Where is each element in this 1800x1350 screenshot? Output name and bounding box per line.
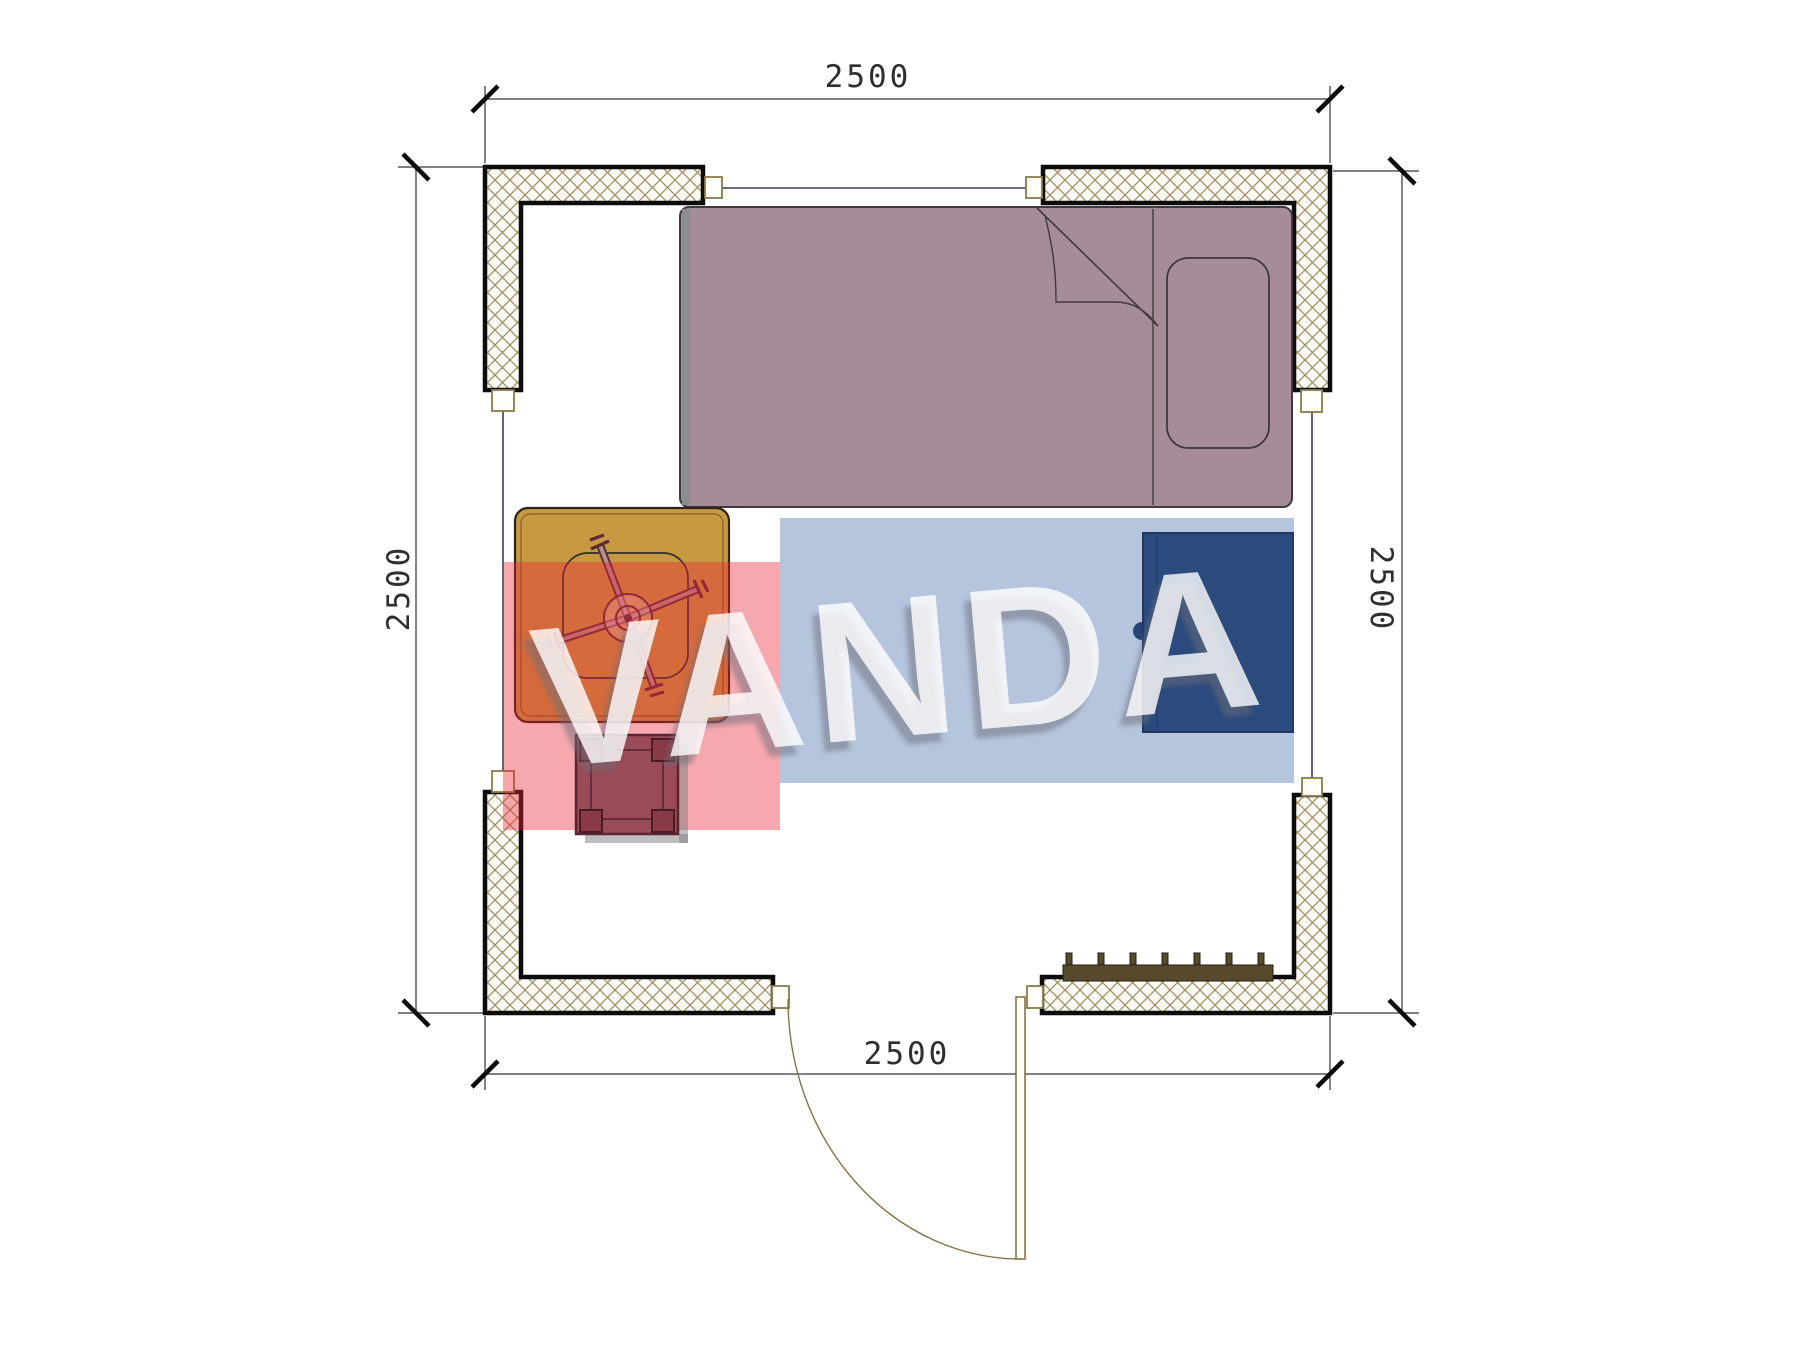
bed-pillow [1167, 258, 1269, 448]
radiator [1063, 953, 1273, 981]
bed [680, 207, 1292, 507]
wall-top-left [485, 167, 703, 390]
floor-plan-drawing [0, 0, 1800, 1350]
stool-shadow [585, 834, 688, 843]
stool [576, 735, 688, 843]
door-jamb-cap [1027, 986, 1043, 1008]
stool-leg [652, 739, 674, 761]
window-frame-box [705, 177, 722, 198]
door [772, 986, 1043, 1259]
watermark-blue-block [780, 518, 1294, 783]
floor-plan-canvas: 2500 2500 2500 2500 VANDA [0, 0, 1800, 1350]
stool-shadow [679, 744, 688, 843]
dimension-label-bottom: 2500 [839, 1036, 975, 1072]
window-frame-box [492, 390, 514, 411]
bed-edge-shade [682, 209, 690, 505]
dimension-label-left: 2500 [381, 520, 417, 656]
window-frame-box [1301, 390, 1322, 412]
door-jamb-cap [772, 986, 789, 1008]
window-frame-box [1302, 778, 1322, 796]
door-leaf [1016, 997, 1025, 1259]
stool-leg [652, 810, 674, 832]
window-frame-box [1026, 177, 1042, 198]
dimension-label-top: 2500 [800, 59, 936, 95]
stool-leg [580, 739, 602, 761]
stool-leg [580, 810, 602, 832]
dimension-label-right: 2500 [1363, 521, 1399, 657]
